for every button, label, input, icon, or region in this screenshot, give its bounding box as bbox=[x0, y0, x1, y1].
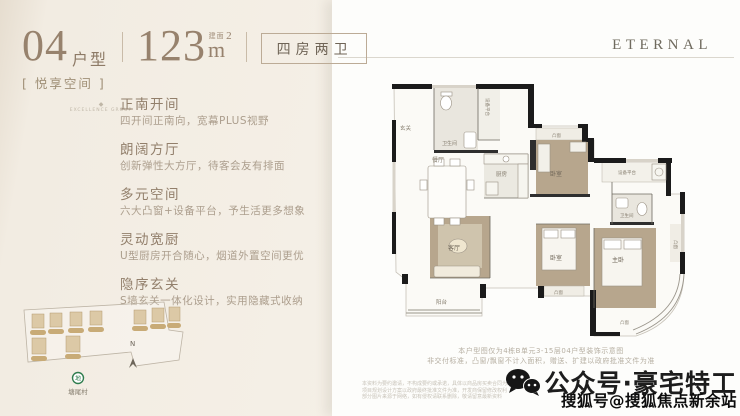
feature-item: 正南开间四开间正南向，宽幕PLUS视野 bbox=[120, 97, 330, 129]
fine-print-line: 本资料为要约邀请，不构成要约或承诺，具体以商品房买卖合同为准 bbox=[362, 381, 520, 388]
fine-print-line: 部分图片来源于网络，如有侵权请联系删除，敬请留意最新资料 bbox=[362, 394, 520, 401]
header-divider-2 bbox=[246, 32, 247, 62]
label-bay-bottom: 凸窗 bbox=[554, 289, 563, 296]
area-value: 123 bbox=[137, 24, 206, 68]
wechat-icon bbox=[505, 367, 541, 397]
feature-list: 正南开间四开间正南向，宽幕PLUS视野 朗阔方厅创新弹性大方厅，待客会友有排面 … bbox=[120, 97, 330, 322]
label-bath1: 卫生间 bbox=[442, 140, 457, 147]
label-bay-curve: 凸窗 bbox=[620, 319, 629, 326]
brochure-slide: ETERNAL 04 户型 123 建面 m 2 四房两卫 [ 悦享空间 ] ◆… bbox=[0, 0, 740, 416]
header-divider-1 bbox=[122, 32, 123, 62]
label-equip2: 设备平台 bbox=[618, 169, 636, 176]
label-entry: 玄关 bbox=[400, 124, 412, 132]
plan-caption-line1: 本户型图仅为4栋B单元3-15层04户型装饰示意图 bbox=[380, 347, 702, 357]
brand-logo: ETERNAL bbox=[612, 37, 712, 54]
label-balcony: 阳台 bbox=[436, 298, 448, 306]
label-kitchen: 厨房 bbox=[496, 170, 508, 178]
area-unit-m: m bbox=[208, 40, 225, 60]
label-equip1: 设备平台 bbox=[484, 98, 491, 116]
brand-divider-line bbox=[338, 57, 734, 58]
feature-title: 正南开间 bbox=[120, 97, 330, 114]
label-dining: 餐厅 bbox=[432, 156, 444, 164]
feature-desc: U型厨房开合随心，烟道外置空间更优 bbox=[120, 249, 330, 264]
feature-title: 多元空间 bbox=[120, 187, 330, 204]
compass-label: N bbox=[130, 340, 135, 348]
unit-number: 04 bbox=[22, 24, 68, 68]
label-living: 客厅 bbox=[448, 244, 460, 252]
floor-plan: 玄关 卫生间 设备平台 餐厅 厨房 卧室 凸窗 设备平台 卫生间 主卧 卧室 客… bbox=[380, 82, 702, 358]
room-count-badge: 四房两卫 bbox=[261, 33, 367, 64]
feature-item: 灵动宽厨U型厨房开合随心，烟道外置空间更优 bbox=[120, 232, 330, 264]
label-bay-right: 凸窗 bbox=[672, 240, 679, 249]
area-superscript: 2 bbox=[226, 30, 232, 42]
feature-title: 朗阔方厅 bbox=[120, 142, 330, 159]
unit-header: 04 户型 123 建面 m 2 四房两卫 bbox=[22, 24, 367, 70]
feature-desc: 四开间正南向，宽幕PLUS视野 bbox=[120, 114, 330, 129]
space-tagline: [ 悦享空间 ] bbox=[22, 73, 106, 92]
label-bath2: 卫生间 bbox=[620, 212, 634, 219]
feature-item: 朗阔方厅创新弹性大方厅，待客会友有排面 bbox=[120, 142, 330, 174]
unit-label: 户型 bbox=[72, 46, 108, 70]
feature-desc: 创新弹性大方厅，待客会友有排面 bbox=[120, 159, 330, 174]
metro-station-glyph: 地 bbox=[75, 375, 81, 383]
label-bay-top: 凸窗 bbox=[552, 132, 561, 139]
feature-item: 多元空间六大凸窗+设备平台，予生活更多想象 bbox=[120, 187, 330, 219]
feature-desc: 六大凸窗+设备平台，予生活更多想象 bbox=[120, 204, 330, 219]
site-map: N 地 塘尾村 bbox=[8, 292, 198, 406]
metro-station-name: 塘尾村 bbox=[68, 387, 88, 396]
legal-fine-print: 本资料为要约邀请，不构成要约或承诺，具体以商品房买卖合同为准 项目规划设计方案以… bbox=[362, 381, 520, 401]
area-unit: 建面 m bbox=[208, 32, 225, 60]
feature-title: 灵动宽厨 bbox=[120, 232, 330, 249]
label-bed2: 卧室 bbox=[550, 170, 562, 178]
label-bed3: 卧室 bbox=[550, 254, 562, 262]
sohu-watermark: 搜狐号@搜狐焦点新余站 bbox=[561, 389, 737, 411]
label-master: 主卧 bbox=[612, 256, 624, 264]
